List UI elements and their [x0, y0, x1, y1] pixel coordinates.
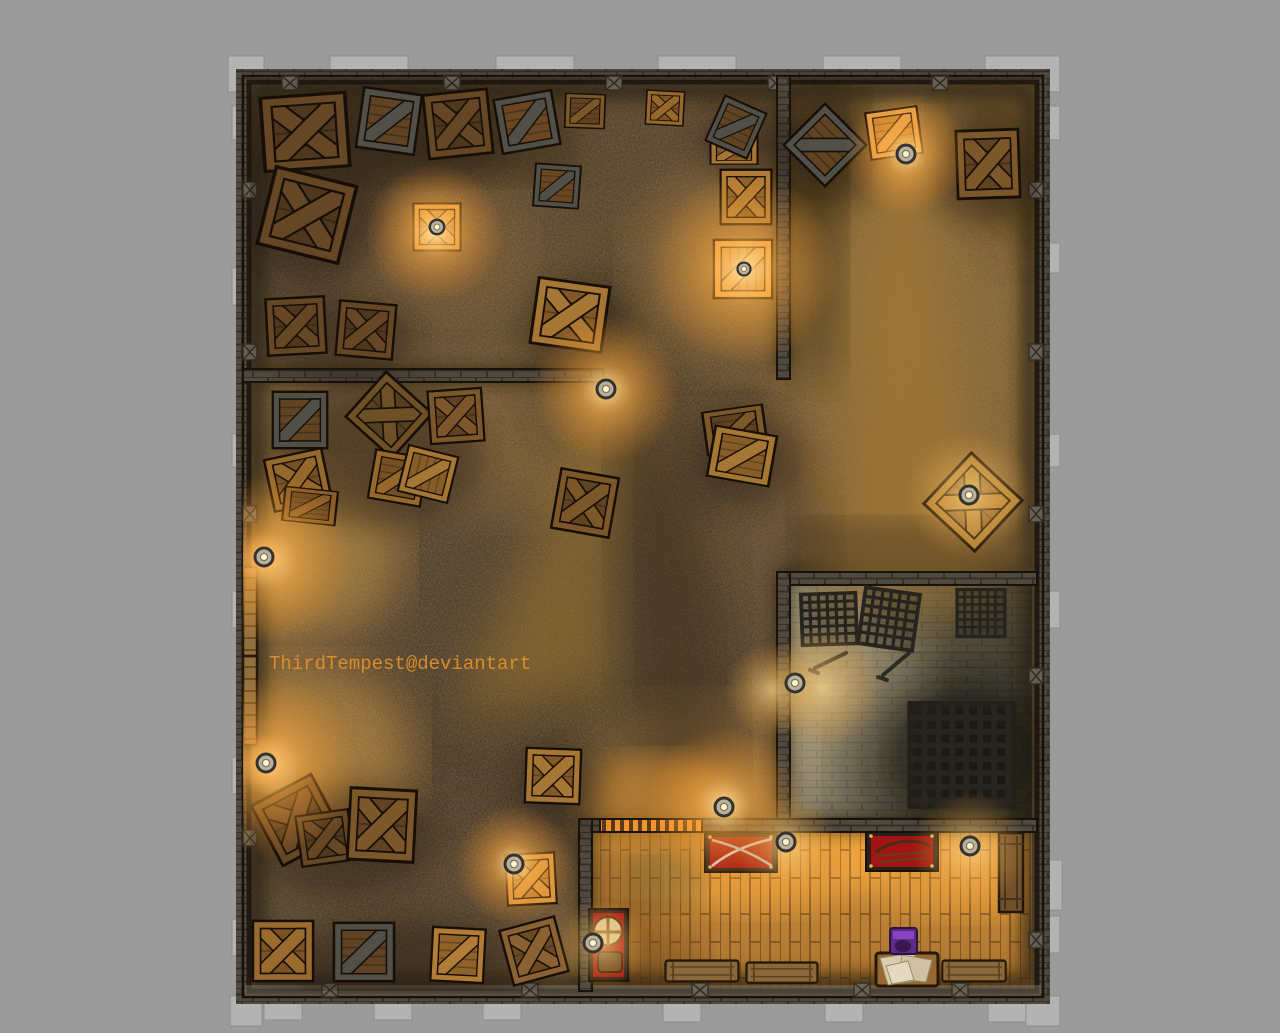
- svg-text:ThirdTempest@deviantart: ThirdTempest@deviantart: [269, 653, 531, 675]
